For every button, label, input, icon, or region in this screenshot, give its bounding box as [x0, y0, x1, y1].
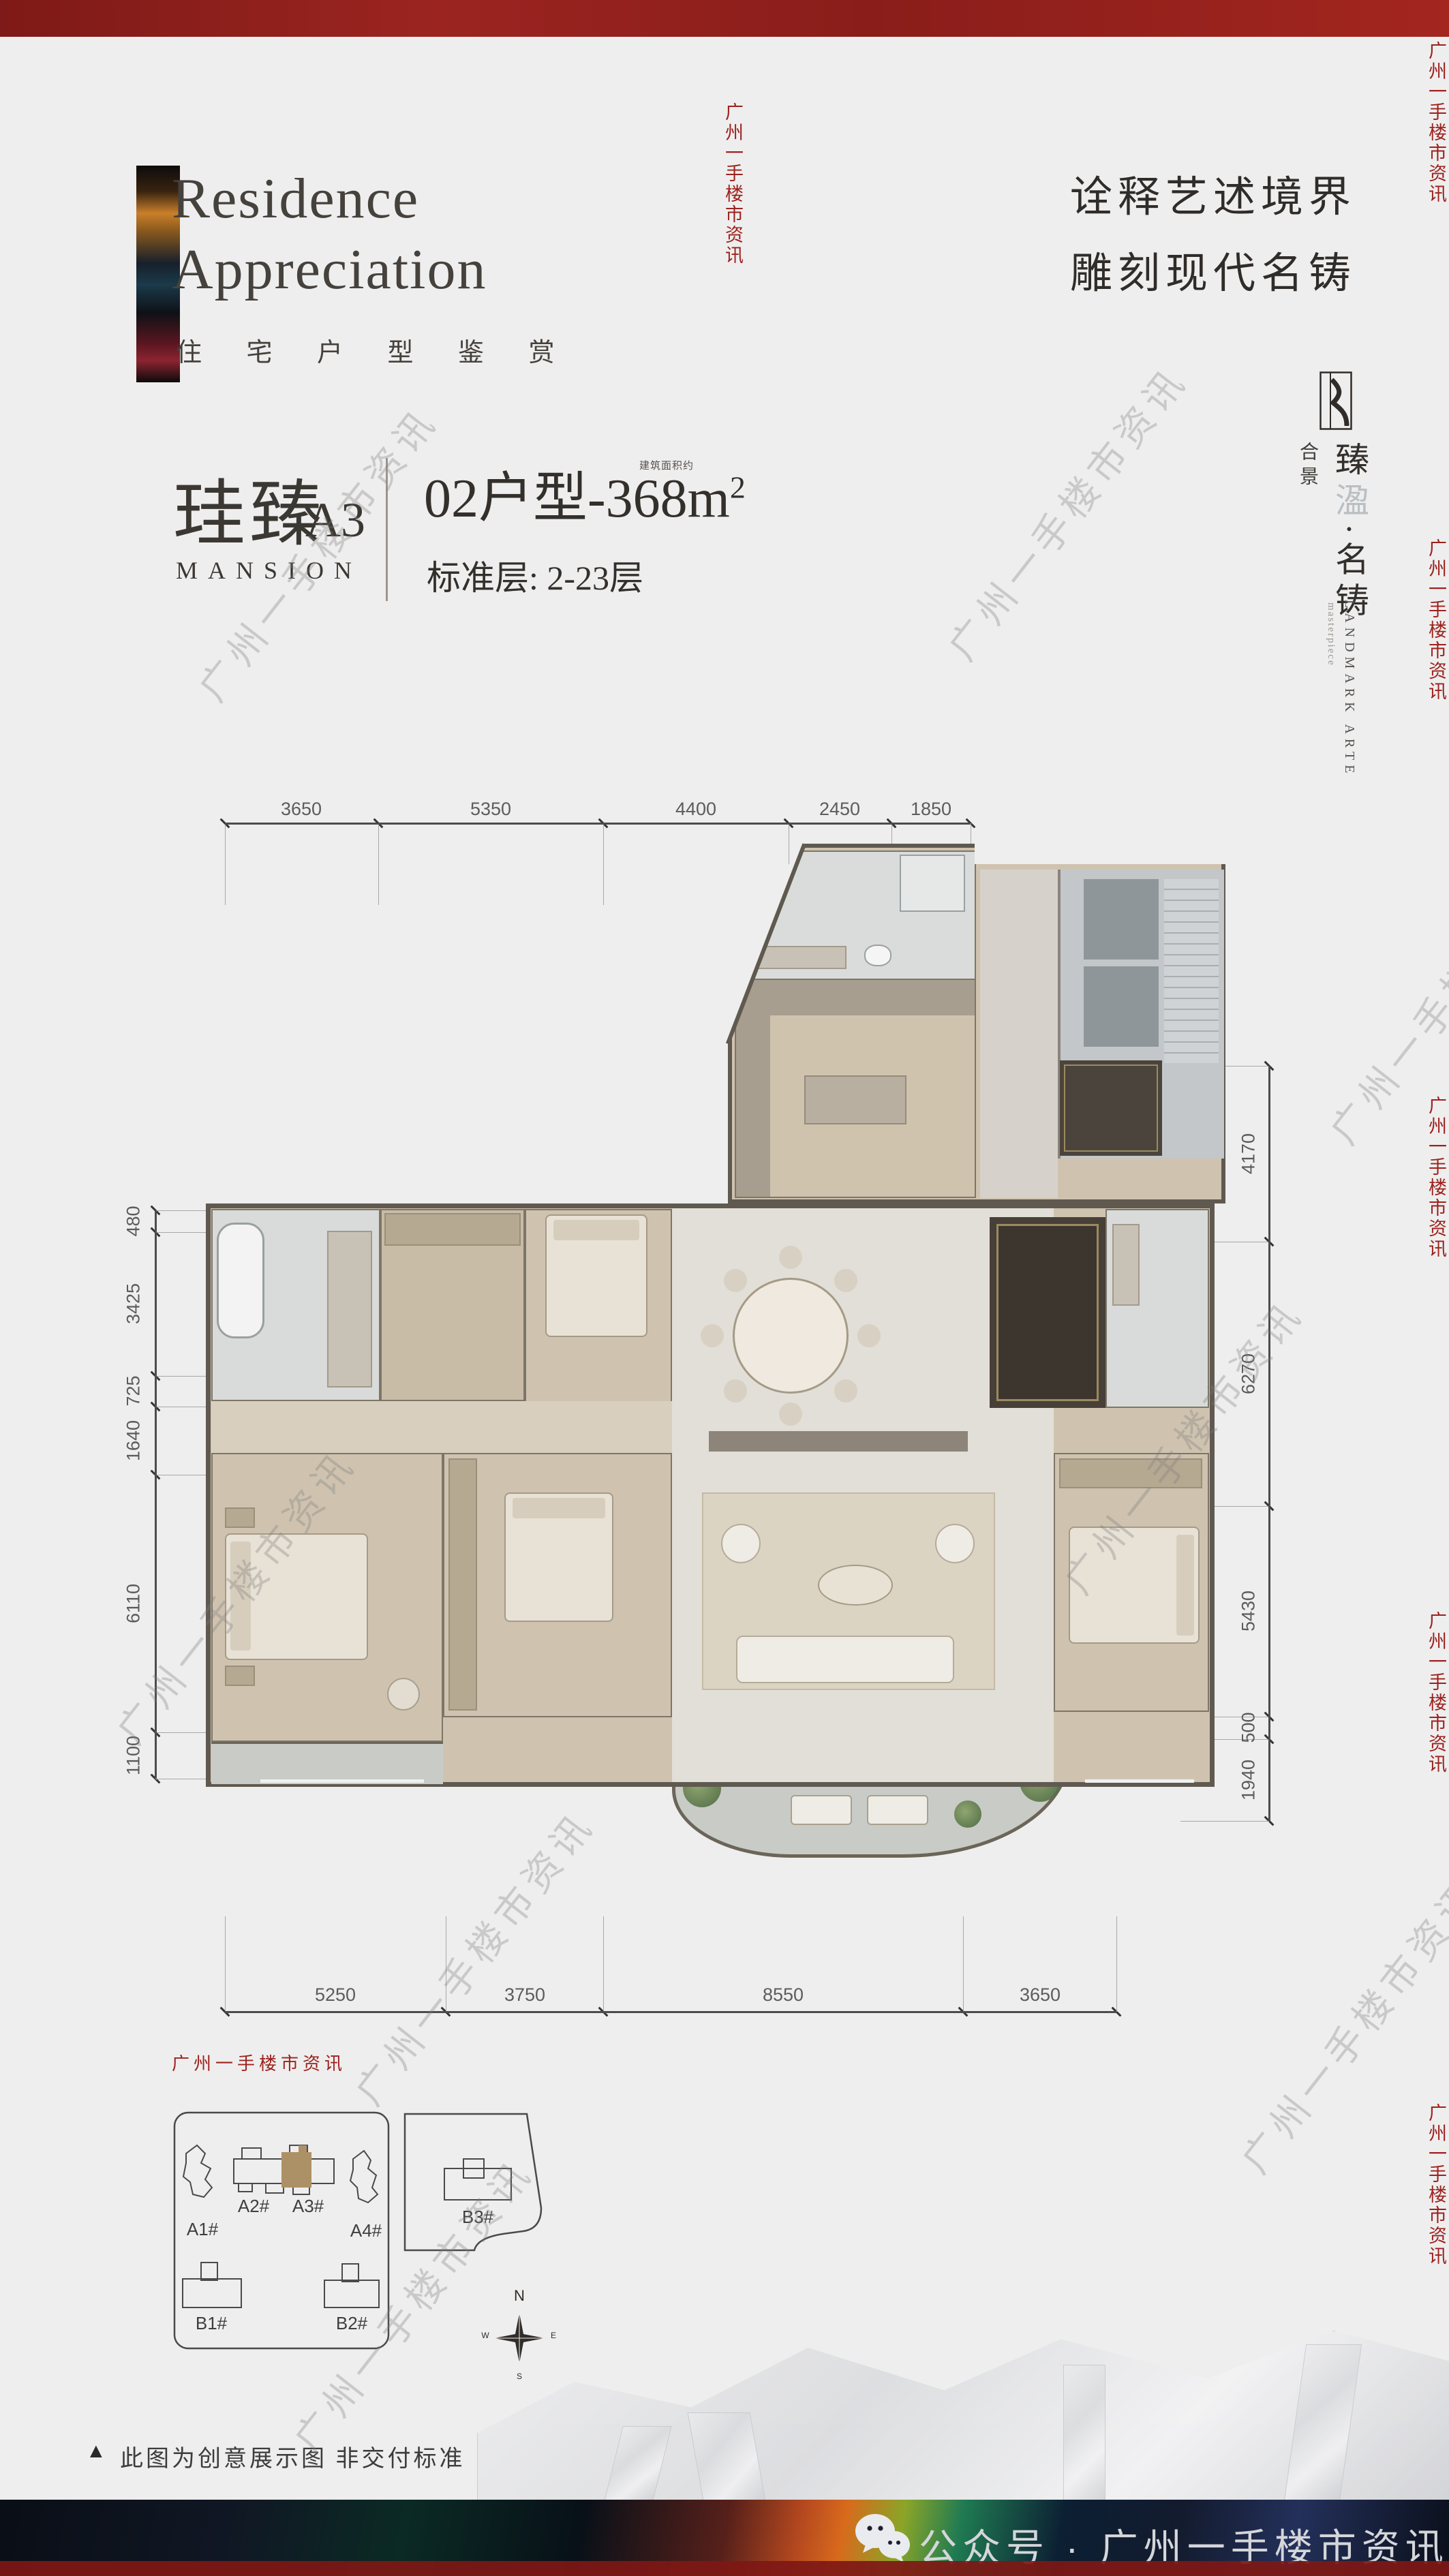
elevator-shaft	[1084, 879, 1159, 960]
tower-label-a4: A4#	[350, 2220, 382, 2241]
dim-label: 8550	[763, 1984, 804, 2006]
dim-label: 5350	[470, 799, 511, 820]
dim-label: 2450	[819, 799, 860, 820]
page-title: Residence Appreciation	[172, 164, 487, 305]
glass-sculpture-column	[1063, 2365, 1105, 2501]
plant	[954, 1800, 981, 1828]
elevator-shaft	[1084, 966, 1159, 1047]
dining-table	[733, 1278, 849, 1394]
stairs	[1164, 879, 1219, 1063]
private-lift-hall	[1060, 1060, 1162, 1156]
dim-ext	[378, 823, 379, 905]
dining-chair	[724, 1269, 747, 1292]
unit-type-title: 02户型-368m2	[424, 454, 746, 533]
watermark-red: 广州一手楼市资讯	[1423, 41, 1449, 204]
dining-chair	[857, 1324, 881, 1347]
floorplan-main	[206, 1203, 1215, 1787]
coffee-table	[818, 1565, 893, 1606]
watermark-red: 广州一手楼市资讯	[1423, 538, 1449, 702]
vanity	[1112, 1224, 1140, 1306]
kitchen-island	[804, 1075, 906, 1124]
page-title-line2: Appreciation	[172, 234, 487, 305]
dim-label: 1640	[123, 1420, 144, 1461]
unit-type-text: 02户型-368m	[424, 469, 730, 529]
unit-area-note: 建筑面积约	[639, 458, 694, 472]
dim-line-right	[1268, 1066, 1270, 1821]
armchair	[721, 1524, 761, 1563]
dim-label: 3425	[123, 1283, 144, 1324]
dim-label: 3750	[504, 1984, 545, 2006]
tower-b2-outline	[342, 2264, 359, 2282]
shower	[900, 855, 965, 912]
bed-pillow	[1176, 1535, 1194, 1636]
dim-label: 500	[1238, 1712, 1260, 1743]
dim-ext	[225, 823, 226, 905]
page-subtitle-zh: 住 宅 户 型 鉴 赏	[176, 331, 574, 369]
watermark-red: 广州一手楼市资讯	[172, 2050, 346, 2075]
brand-name-en-sub: masterpiece	[1325, 602, 1337, 666]
disclaimer-text: 此图为创意展示图 非交付标准	[120, 2440, 466, 2473]
bathtub	[217, 1223, 264, 1338]
dining-chair	[779, 1246, 802, 1269]
outdoor-sofa	[867, 1795, 928, 1825]
outdoor-sofa	[791, 1795, 852, 1825]
wechat-icon	[853, 2512, 912, 2565]
watermark-red: 广州一手楼市资讯	[720, 102, 746, 266]
unit-type-sup: 2	[730, 470, 746, 504]
tower-a3-highlight	[281, 2152, 311, 2188]
brand-prefix: 合景	[1294, 442, 1321, 491]
corridor	[211, 1401, 672, 1453]
dim-label: 480	[123, 1206, 144, 1236]
tower-a4-outline	[350, 2151, 378, 2203]
floorplan-wing	[728, 844, 1225, 1203]
dim-label: 1850	[911, 799, 951, 820]
dim-label: 1940	[1238, 1760, 1260, 1800]
dim-ext	[963, 1916, 964, 2012]
poster: Residence Appreciation 住 宅 户 型 鉴 赏 诠释艺述境…	[0, 0, 1449, 2576]
balcony-left	[211, 1742, 443, 1784]
toilet	[864, 945, 891, 966]
bed-pillow	[553, 1220, 639, 1240]
dining-chair	[724, 1379, 747, 1402]
vanity	[327, 1231, 372, 1387]
watermark: 广州一手楼市资讯	[1227, 1866, 1449, 2183]
dim-label: 5250	[315, 1984, 356, 2006]
compass-icon	[489, 2307, 550, 2369]
tv-console	[709, 1431, 968, 1452]
lift-lobby	[990, 1217, 1105, 1408]
page-title-line1: Residence	[172, 164, 487, 234]
dim-ext	[1116, 1916, 1117, 2012]
disclaimer-marker: ▲	[86, 2440, 106, 2463]
dim-ext	[603, 823, 604, 905]
compass-w: W	[481, 2331, 489, 2340]
kitchen-counter	[736, 980, 975, 1015]
dim-label: 6110	[123, 1584, 144, 1623]
tower-b1-outline	[201, 2263, 217, 2280]
dim-label: 3650	[281, 799, 322, 820]
nightstand	[225, 1507, 255, 1528]
dim-ext	[225, 1916, 226, 2012]
window	[1085, 1779, 1194, 1783]
watermark-red: 广州一手楼市资讯	[1423, 2103, 1449, 2267]
window	[260, 1779, 424, 1783]
dining-chair	[779, 1402, 802, 1426]
compass-s: S	[517, 2372, 522, 2381]
sofa	[736, 1636, 954, 1683]
nightstand	[225, 1666, 255, 1686]
dim-label: 725	[123, 1375, 144, 1406]
tower-label-b1: B1#	[196, 2313, 227, 2334]
wardrobe	[384, 1213, 521, 1246]
watermark: 广州一手楼市资讯	[341, 1798, 606, 2115]
brand-name: 臻溋·名铸	[1325, 442, 1374, 624]
service-corridor	[980, 870, 1058, 1198]
armchair	[935, 1524, 975, 1563]
brand-name-1: 臻	[1330, 442, 1369, 482]
dim-ext	[789, 823, 789, 864]
tower-label-a1: A1#	[187, 2219, 218, 2240]
watermark: 广州一手楼市资讯	[934, 353, 1199, 671]
dim-line-bottom	[225, 2011, 1116, 2013]
bed-pillow	[513, 1498, 605, 1518]
dim-ext	[603, 1916, 604, 2012]
tower-a1-outline	[183, 2145, 212, 2197]
wardrobe	[448, 1458, 477, 1711]
tower-label-a3: A3#	[292, 2196, 324, 2217]
unit-floor-info: 标准层: 2-23层	[427, 551, 643, 600]
kitchen-counter	[736, 1015, 770, 1197]
dining-chair	[701, 1324, 724, 1347]
compass-e: E	[551, 2331, 556, 2340]
dim-label: 5430	[1238, 1591, 1260, 1631]
watermark-red: 广州一手楼市资讯	[1423, 1611, 1449, 1775]
bottom-red-strip	[0, 2561, 1449, 2576]
top-red-strip	[0, 0, 1449, 37]
dim-label: 4170	[1238, 1133, 1260, 1174]
dim-ext	[1180, 1821, 1269, 1822]
watermark-red: 广州一手楼市资讯	[1423, 1096, 1449, 1259]
dim-label: 3650	[1020, 1984, 1061, 2006]
headline-line1: 诠释艺述境界	[1070, 162, 1356, 224]
dining-chair	[834, 1379, 857, 1402]
brand-name-en: LANDMARK ARTE	[1341, 600, 1357, 778]
brand-logo-mark	[1320, 371, 1352, 430]
tower-label-a2: A2#	[238, 2196, 269, 2217]
brand-name-2: 溋	[1330, 482, 1369, 523]
armchair	[387, 1678, 420, 1711]
dim-line-top	[225, 823, 971, 825]
compass-n: N	[514, 2287, 525, 2305]
headline-line2: 雕刻现代名铸	[1070, 239, 1356, 300]
dim-label: 4400	[675, 799, 716, 820]
dining-chair	[834, 1269, 857, 1292]
